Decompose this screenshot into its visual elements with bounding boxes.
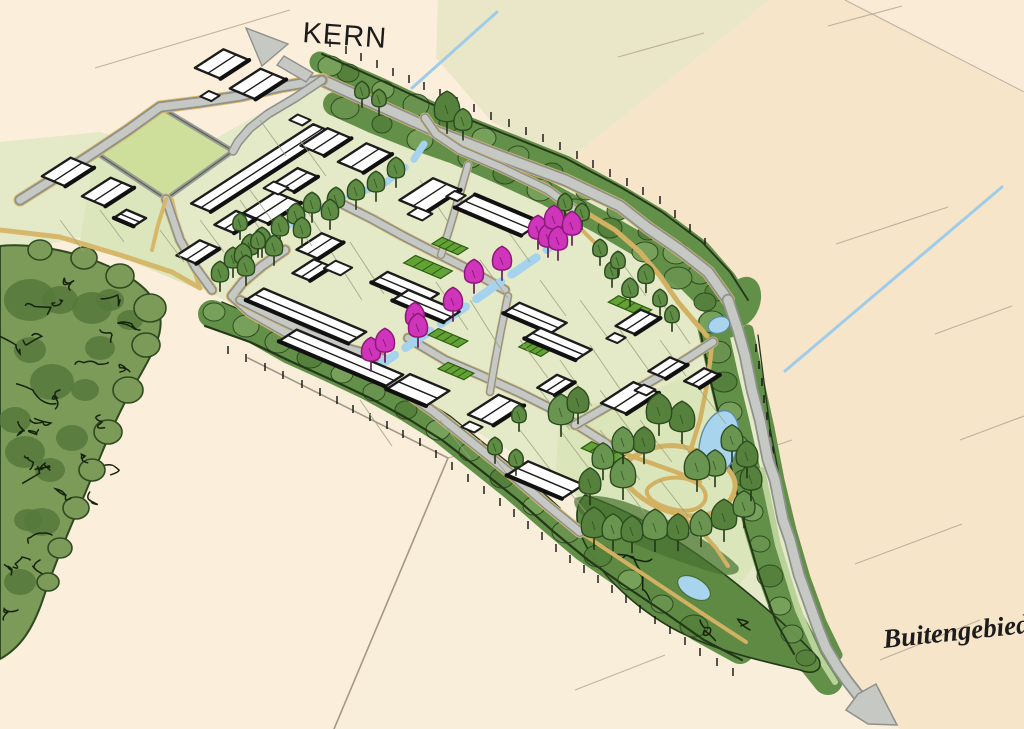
svg-text:KERN: KERN <box>302 17 389 55</box>
